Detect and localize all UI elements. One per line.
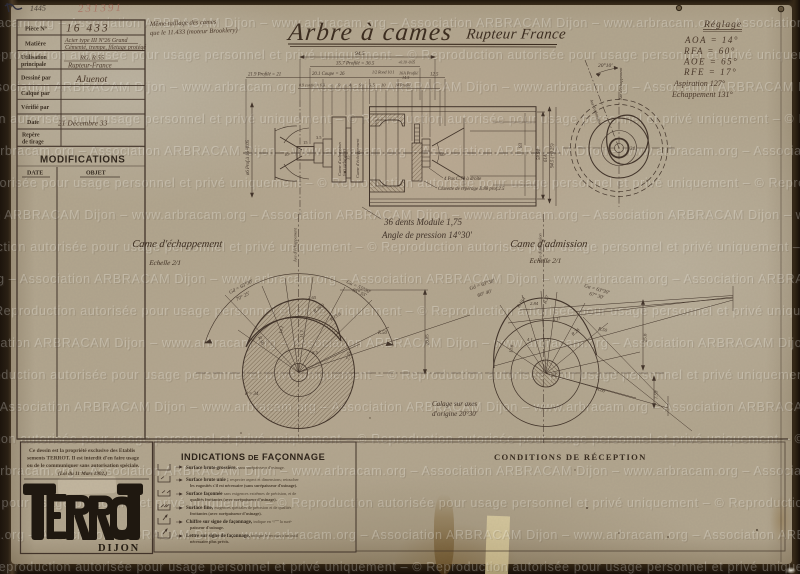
svg-text:Vérifié par: Vérifié par [21, 105, 49, 111]
svg-text:Rupteur France: Rupteur France [465, 27, 567, 43]
svg-text:Axe d'échappement: Axe d'échappement [293, 227, 298, 263]
svg-text:Ce dessin est la propriété exc: Ce dessin est la propriété exclusive des… [29, 448, 135, 454]
svg-text:Rupteur-France: Rupteur-France [67, 63, 112, 70]
svg-text:DE: DE [248, 453, 259, 462]
svg-text:Date: Date [27, 120, 39, 126]
svg-text:231391: 231391 [78, 2, 123, 15]
svg-text:Dessiné par: Dessiné par [21, 76, 51, 82]
svg-text:Came d'échappement: Came d'échappement [132, 239, 224, 250]
svg-text:Echelle 2/1: Echelle 2/1 [528, 257, 561, 265]
svg-text:INDICATIONS: INDICATIONS [181, 452, 246, 462]
svg-text:Matière: Matière [25, 41, 46, 48]
svg-text:Came d'admission: Came d'admission [510, 239, 588, 250]
svg-text:ø6 Prof.à 16 -0.05: ø6 Prof.à 16 -0.05 [246, 139, 251, 176]
svg-text:DIJON: DIJON [98, 543, 140, 554]
svg-text:RFE = 17°: RFE = 17° [683, 67, 737, 77]
svg-text:35.7 Profilé = 36.5: 35.7 Profilé = 36.5 [336, 62, 375, 67]
svg-text:26.85: 26.85 [426, 334, 431, 345]
svg-text:AOE = 65°: AOE = 65° [683, 57, 738, 67]
svg-text:RG. R 55: RG. R 55 [79, 55, 105, 62]
svg-text:Calqué par: Calqué par [21, 91, 50, 97]
svg-text:nécessaire plus précis.: nécessaire plus précis. [190, 539, 229, 544]
svg-text:Utilisation: Utilisation [21, 55, 48, 61]
svg-text:Arbre à cames: Arbre à cames [285, 19, 454, 46]
svg-text:principale: principale [21, 62, 47, 68]
svg-text:paisseur d'usinage.: paisseur d'usinage. [190, 525, 224, 530]
svg-text:Angle de pression 14°30': Angle de pression 14°30' [381, 230, 473, 240]
svg-text:1445: 1445 [30, 3, 46, 13]
svg-text:36 dents Module 1,75: 36 dents Module 1,75 [383, 217, 462, 227]
svg-text:d'origine 20°30': d'origine 20°30' [432, 410, 478, 418]
svg-text:ou de le communiquer sans auto: ou de le communiquer sans autorisation s… [27, 463, 140, 469]
svg-text:3.5: 3.5 [369, 83, 375, 88]
svg-text:8.5: 8.5 [312, 350, 318, 355]
svg-text:14 Profilé: 14 Profilé [395, 83, 411, 88]
svg-text:4.1: 4.1 [527, 337, 533, 342]
svg-text:1/2 Rond 10.1: 1/2 Rond 10.1 [372, 70, 395, 75]
svg-text:AOA = 14°: AOA = 14° [684, 35, 739, 45]
svg-text:94.5: 94.5 [355, 50, 365, 57]
svg-text:12.5: 12.5 [430, 73, 439, 78]
svg-text:les rugosités s'il est nécessa: les rugosités s'il est nécessaire (sans … [190, 483, 297, 488]
svg-text:58.94: 58.94 [537, 149, 542, 160]
svg-text:Came d'admission: Came d'admission [337, 142, 342, 176]
svg-text:CONDITIONS DE RÉCEPTION: CONDITIONS DE RÉCEPTION [494, 452, 647, 462]
svg-text:qualités frottantes (avec suré: qualités frottantes (avec surépaisseur d… [190, 497, 277, 502]
svg-text:7.5: 7.5 [543, 337, 549, 342]
svg-text:15: 15 [303, 140, 308, 145]
svg-text:10: 10 [381, 83, 386, 88]
svg-text:16 433: 16 433 [66, 23, 110, 35]
svg-text:RFA = 60°: RFA = 60° [683, 46, 736, 56]
svg-text:Pièce Nº: Pièce Nº [25, 26, 47, 33]
svg-text:R.50: R.50 [377, 331, 388, 336]
svg-text:DATE: DATE [27, 171, 43, 177]
svg-text:MODIFICATIONS: MODIFICATIONS [40, 155, 125, 166]
svg-text:21 Décembre 33: 21 Décembre 33 [58, 119, 108, 128]
svg-text:34: 34 [551, 374, 556, 379]
svg-text:OBJET: OBJET [86, 171, 106, 177]
svg-text:Clavette de repérage E.88 prof: Clavette de repérage E.88 prof.2.5 [438, 187, 505, 192]
svg-text:61A: 61A [544, 154, 549, 162]
svg-text:frottantes (avec surépaisseur: frottantes (avec surépaisseur d'usinage)… [190, 511, 262, 516]
svg-text:25.6: 25.6 [644, 333, 649, 342]
svg-text:+0.10 -0.05: +0.10 -0.05 [398, 61, 415, 65]
svg-text:Echappement 131°: Echappement 131° [671, 90, 734, 99]
svg-text:20°10': 20°10' [598, 62, 613, 69]
svg-text:14.5: 14.5 [402, 75, 409, 80]
svg-text:7.59: 7.59 [655, 390, 660, 399]
svg-text:0.9 confré = 6.9: 0.9 confré = 6.9 [299, 83, 325, 88]
svg-text:Acier type III Nº26 Grand: Acier type III Nº26 Grand [64, 38, 129, 44]
svg-text:4 Pas C.78 à droite: 4 Pas C.78 à droite [444, 177, 482, 182]
svg-text:21.9 Profilé = 21: 21.9 Profilé = 21 [248, 73, 281, 78]
svg-text:Came d'échappement: Came d'échappement [355, 138, 360, 178]
svg-text:Calage sur axes: Calage sur axes [432, 400, 477, 408]
svg-text:11.7: 11.7 [299, 329, 305, 338]
svg-text:20.1 Coupe = 26: 20.1 Coupe = 26 [312, 72, 345, 77]
svg-text:sements TERROT. Il est interdi: sements TERROT. Il est interdit d'en fai… [27, 456, 140, 462]
svg-text:Réglage: Réglage [703, 20, 742, 30]
svg-text:(Loi du 11 Mars 1902.): (Loi du 11 Mars 1902.) [58, 470, 107, 477]
svg-text:2.65: 2.65 [308, 295, 317, 300]
svg-text:2.84: 2.84 [530, 301, 539, 306]
svg-text:3.5: 3.5 [316, 135, 322, 140]
svg-text:FAÇONNAGE: FAÇONNAGE [262, 452, 325, 462]
svg-text:60°: 60° [440, 152, 447, 157]
svg-text:d = 34: d = 34 [245, 392, 259, 397]
svg-text:Repère: Repère [22, 133, 40, 139]
svg-text:AJuenot: AJuenot [75, 75, 107, 85]
svg-text:94.5 (+0.25): 94.5 (+0.25) [551, 143, 556, 168]
svg-text:10°: 10° [284, 152, 291, 157]
svg-text:de tirage: de tirage [22, 140, 44, 146]
svg-text:83: 83 [519, 143, 524, 149]
svg-text:Aspiration 127°: Aspiration 127° [673, 79, 726, 88]
svg-text:Echelle 2/1: Echelle 2/1 [148, 259, 181, 267]
svg-text:Axe d'échappement: Axe d'échappement [618, 67, 623, 101]
svg-text:34: 34 [630, 147, 635, 152]
